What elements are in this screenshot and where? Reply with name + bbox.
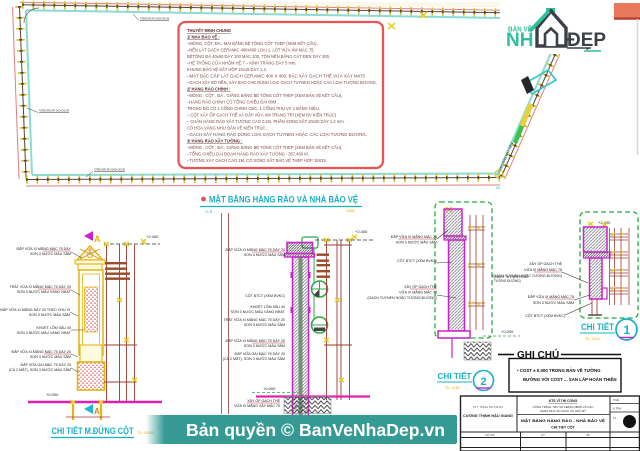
svg-text:+2.400: +2.400	[146, 234, 159, 239]
svg-text:– CỘT XÂY ỐP GẠCH THẺ VÀ ĐẮP V: – CỘT XÂY ỐP GẠCH THẺ VÀ ĐẮP VỮA XM TRAN…	[187, 113, 337, 118]
svg-text:ĐẮP VỮA XI MĂNG MÁC 75 DÀY 20: ĐẮP VỮA XI MĂNG MÁC 75 DÀY 20	[12, 349, 71, 354]
svg-text:(CẢ 2 MẶT), SƠN 3 NƯỚC MÀU SẮM: (CẢ 2 MẶT), SƠN 3 NƯỚC MÀU SẮM	[9, 367, 71, 372]
svg-text:ĐƯỜNG VỚI COST ... SAN LẤP HOÀ: ĐƯỜNG VỚI COST ... SAN LẤP HOÀN THIỆN	[523, 377, 617, 382]
svg-text:A: A	[94, 407, 100, 416]
svg-text:CƯỜNG THỊNH HẬU GIANG: CƯỜNG THỊNH HẬU GIANG	[463, 413, 513, 418]
svg-text:THUYẾT MINH CHUNG: THUYẾT MINH CHUNG	[187, 28, 231, 33]
svg-text:–HÀNG RÀO CHÍNH CÓ TỔNG CHIỀU: –HÀNG RÀO CHÍNH CÓ TỔNG CHIỀU DÀI 80M ,	[187, 100, 279, 105]
svg-text:TL: 1/10: TL: 1/10	[445, 385, 460, 390]
svg-text:NH: NH	[506, 30, 533, 51]
svg-text:SƠN 3 NƯỚC MÀU SẮM: SƠN 3 NƯỚC MÀU SẮM	[244, 322, 285, 327]
svg-text:1/400: 1/400	[346, 209, 355, 213]
svg-text:TƯỜNG ĐƯỜNG): TƯỜNG ĐƯỜNG)	[494, 278, 521, 283]
svg-text:–MẶT BẬC CẤP LÁT GẠCH CERAMIC: –MẶT BẬC CẤP LÁT GẠCH CERAMIC 400 X 400,…	[187, 74, 366, 79]
svg-text:–GẠCH XÂY BÓ NỀN, XÂY BAO CHE: –GẠCH XÂY BÓ NỀN, XÂY BAO CHE DÙNG LOẠI …	[187, 80, 377, 85]
svg-text:CỘT BTCT (XEM BVKC): CỘT BTCT (XEM BVKC)	[397, 258, 437, 263]
svg-text:05: 05	[586, 433, 590, 437]
svg-text:SƠN 3 NƯỚC MÀU SẮM: SƠN 3 NƯỚC MÀU SẮM	[30, 251, 71, 256]
svg-text:CTY TNHH XD-TM-DV: CTY TNHH XD-TM-DV	[473, 405, 504, 409]
svg-text:SƠN 3 NƯỚC MÀU SẮM: SƠN 3 NƯỚC MÀU SẮM	[244, 252, 285, 257]
svg-text:(GẠCH TUYNEN HOẶC TƯỜNG ĐƯỜNG): (GẠCH TUYNEN HOẶC TƯỜNG ĐƯỜNG)	[367, 295, 437, 300]
svg-text:SƠN 3 NƯỚC MÀU SẮM: SƠN 3 NƯỚC MÀU SẮM	[30, 354, 71, 359]
svg-text:SƠN 3 NƯỚC MÀU VÀNG NHẠT: SƠN 3 NƯỚC MÀU VÀNG NHẠT	[17, 330, 72, 335]
svg-text:ĐẮP VỮA XI MĂNG MÁC 75: ĐẮP VỮA XI MĂNG MÁC 75	[391, 234, 437, 239]
svg-text:TL Đ: TL Đ	[205, 210, 213, 214]
svg-text:TƯỜNG RÀO XÂY GẠCH CAO 2M: TƯỜNG RÀO XÂY GẠCH CAO 2M	[94, 167, 125, 172]
svg-text:–MÓNG , CỘT , ĐÀ , GIẰNG BẰNG: –MÓNG , CỘT , ĐÀ , GIẰNG BẰNG BÊ TÔNG CỐ…	[187, 145, 342, 150]
svg-text:XÂY ỐP GẠCH THẺ: XÂY ỐP GẠCH THẺ	[404, 284, 437, 289]
svg-text:–TỔNG CHIỀU DÀI ĐOẠN HÀNG RÀO: –TỔNG CHIỀU DÀI ĐOẠN HÀNG RÀO XÂY TƯỜNG …	[187, 152, 309, 157]
svg-text:ĐẮP VỮA XI MĂNG MÁC 75 DÀY 20: ĐẮP VỮA XI MĂNG MÁC 75 DÀY 20	[226, 338, 285, 343]
svg-text:SƠN 3 NƯỚC MÀU VÀNG NHẠT: SƠN 3 NƯỚC MÀU VÀNG NHẠT	[231, 309, 286, 314]
svg-text:CHI TIẾT M.ĐỨNG CỘT: CHI TIẾT M.ĐỨNG CỘT	[52, 425, 134, 436]
svg-text:2/ HÀNG RÀO CHÍNH :: 2/ HÀNG RÀO CHÍNH :	[187, 87, 230, 92]
svg-text:ĐẮP VỮA XI MĂNG MÁC 75 DÀY 20: ĐẮP VỮA XI MĂNG MÁC 75 DÀY 20	[226, 247, 285, 252]
svg-text:TƯỜNG RÀO XÂY GẠCH CAO 2M: TƯỜNG RÀO XÂY GẠCH CAO 2M	[140, 16, 169, 21]
svg-text:XÂY ỐP GẠCH THẺ: XÂY ỐP GẠCH THẺ	[529, 261, 562, 266]
svg-text:ĐẮP VỮA XI MĂNG DÀY 20 THEO CH: ĐẮP VỮA XI MĂNG DÀY 20 THEO CHU VI	[0, 307, 70, 312]
svg-text:–MÓNG, CỘT, ĐÀ.. MÁI BẰNG BÊ T: –MÓNG, CỘT, ĐÀ.. MÁI BẰNG BÊ TÔNG CỐT TH…	[187, 41, 318, 46]
svg-text:+0.000: +0.000	[263, 386, 276, 391]
svg-text:SƠN 3 NƯỚC MÀU SẮM: SƠN 3 NƯỚC MÀU SẮM	[244, 343, 285, 348]
svg-text:SƠN 3 NƯỚC MÀU SẮM: SƠN 3 NƯỚC MÀU SẮM	[396, 240, 437, 245]
svg-text:TRÁT VỮA XI MĂNG MÁC 75 DÀY 20: TRÁT VỮA XI MĂNG MÁC 75 DÀY 20	[10, 284, 71, 289]
svg-text:Bản quyền © BanVeNhaDep.vn: Bản quyền © BanVeNhaDep.vn	[186, 420, 445, 440]
svg-text:KHUNG BẢO VỆ SẮT HỘP 15x15 DÀY: KHUNG BẢO VỆ SẮT HỘP 15x15 DÀY 1,2,	[187, 67, 267, 72]
svg-text:BÊTÔNG ĐÁ 40x60 DÀY 100 MÁC 10: BÊTÔNG ĐÁ 40x60 DÀY 100 MÁC 100, TÔN NỀN…	[187, 54, 330, 59]
svg-text:– CHÂN HÀNG RÀO XÂY TƯỜNG CAO: – CHÂN HÀNG RÀO XÂY TƯỜNG CAO 0,2m, PHẦN…	[187, 119, 344, 124]
svg-text:MẶT BẰNG HÀNG RÀO - NHÀ BẢO VỆ: MẶT BẰNG HÀNG RÀO - NHÀ BẢO VỆ	[521, 418, 606, 423]
svg-text:+0.000: +0.000	[46, 392, 59, 397]
svg-text:ĐẮP VỮA XI MĂNG MÁC 75 DÀY: ĐẮP VỮA XI MĂNG MÁC 75 DÀY	[16, 246, 71, 251]
svg-text:TL: TL	[613, 416, 617, 420]
svg-text:TL: 1/10: TL: 1/10	[585, 336, 600, 341]
svg-text:TRÁT VỮA XI MĂNG MÁC 75 DÀY 20: TRÁT VỮA XI MĂNG MÁC 75 DÀY 20	[224, 317, 285, 322]
svg-text:ĐẮP VỮA XI MĂNG MÁC 75: ĐẮP VỮA XI MĂNG MÁC 75	[528, 294, 574, 299]
svg-text:1/ NHÀ BẢO VỆ :: 1/ NHÀ BẢO VỆ :	[187, 35, 220, 40]
svg-text:VỮA XI MĂNG MÁC 75: VỮA XI MĂNG MÁC 75	[524, 267, 562, 272]
svg-text:CHI TIẾT: CHI TIẾT	[438, 371, 473, 381]
svg-text:–MÓNG , CỘT , ĐÀ , GIẰNG BẰNG: –MÓNG , CỘT , ĐÀ , GIẰNG BẰNG BÊ TÔNG CỐ…	[187, 93, 342, 98]
svg-text:HẠNG MỤC XD KHÁC XÃ HOÀ MỸ: HẠNG MỤC XD KHÁC XÃ HOÀ MỸ	[540, 408, 586, 413]
svg-text:VỮA XI MĂNG MÁC 75: VỮA XI MĂNG MÁC 75	[399, 290, 437, 295]
svg-text:2: 2	[481, 376, 487, 388]
svg-text:TƯỜNG RÀO XÂY GẠCH CAO 2M: TƯỜNG RÀO XÂY GẠCH CAO 2M	[39, 108, 69, 113]
svg-text:SƠN 3 NƯỚC MÀU VÀNG NHẠT: SƠN 3 NƯỚC MÀU VÀNG NHẠT	[17, 289, 72, 294]
svg-text:SƠN 3 NƯỚC MÀU SẮM: SƠN 3 NƯỚC MÀU SẮM	[533, 300, 574, 305]
svg-text:ĐẮP VỮA GAI MÁC 75 DÀY 20: ĐẮP VỮA GAI MÁC 75 DÀY 20	[21, 362, 71, 367]
svg-text:1: 1	[624, 323, 631, 337]
svg-text:–TƯỜNG XÂY GẠCH CAO 2M, CÓ SON: –TƯỜNG XÂY GẠCH CAO 2M, CÓ SONG SẮT BẢO …	[187, 158, 327, 163]
svg-text:CHI TIẾT CỘT: CHI TIẾT CỘT	[551, 425, 575, 430]
svg-text:A: A	[94, 234, 101, 244]
svg-text:XÂY ỐP GẠCH THẺ: XÂY ỐP GẠCH THẺ	[247, 398, 280, 403]
svg-text:T.KẾ: T.KẾ	[613, 397, 619, 402]
svg-text:(CẢ 2 MẶT), SƠN 3 NƯỚC MÀU SẮM: (CẢ 2 MẶT), SƠN 3 NƯỚC MÀU SẮM	[223, 356, 285, 361]
svg-text:–GẠCH XÂY HÀNG RÀO DÙNG LOẠI G: –GẠCH XÂY HÀNG RÀO DÙNG LOẠI GẠCH TUYNEN…	[187, 132, 367, 137]
svg-text:KT: KT	[541, 433, 545, 437]
svg-text:CÓ HOA VĂNG NHƯ BẢN VẼ KIẾN TR: CÓ HOA VĂNG NHƯ BẢN VẼ KIẾN TRÚC,	[187, 126, 267, 131]
svg-text:MẶT BẰNG HÀNG RÀO VÀ NHÀ BẢO V: MẶT BẰNG HÀNG RÀO VÀ NHÀ BẢO VỆ	[209, 194, 358, 206]
svg-text:–HỆ THỐNG CỬA NHÔM HỆ 7 – KÍNH: –HỆ THỐNG CỬA NHÔM HỆ 7 – KÍNH TRẮNG DÀY…	[187, 61, 297, 66]
svg-text:3/ HÀNG RÀO XÂY TƯỜNG :: 3/ HÀNG RÀO XÂY TƯỜNG :	[187, 139, 243, 144]
svg-text:HỒ SƠ: HỒ SƠ	[485, 432, 495, 437]
svg-text:KTS VĨ THI CÔNG: KTS VĨ THI CÔNG	[549, 398, 578, 403]
svg-text:CỘT BTCT (XEM BVKC): CỘT BTCT (XEM BVKC)	[245, 293, 285, 298]
svg-text:–NỀN LÁT GẠCH CERAMIC 400x400: –NỀN LÁT GẠCH CERAMIC 400x400 LOẠI 1, LÓ…	[187, 48, 315, 53]
svg-text:• COST ± 0.000 TRONG BẢN VẼ TƯ: • COST ± 0.000 TRONG BẢN VẼ TƯỜNG	[517, 368, 601, 373]
svg-text:CHI TIẾT: CHI TIẾT	[581, 322, 614, 332]
svg-text:KHOÉT LÕM SÂU 40: KHOÉT LÕM SÂU 40	[251, 304, 286, 309]
svg-text:SƠN 3 NƯỚC MÀU SẮM: SƠN 3 NƯỚC MÀU SẮM	[29, 312, 70, 317]
svg-text:ĐẮP VỮA GAI MÁC 75 DÀY 20: ĐẮP VỮA GAI MÁC 75 DÀY 20	[235, 351, 285, 356]
svg-text:VỮA XI MĂNG XÂY MÁC 75: VỮA XI MĂNG XÂY MÁC 75	[234, 403, 280, 408]
svg-text:+0.000: +0.000	[501, 329, 514, 334]
svg-text:TRONG ĐÓ CÓ 1 CỔNG CHÍNH CĐC,: TRONG ĐÓ CÓ 1 CỔNG CHÍNH CĐC, 1 CỔNG PHỤ…	[187, 106, 320, 111]
svg-text:CỘT BTCT (XEM BVKC): CỘT BTCT (XEM BVKC)	[525, 313, 565, 318]
svg-text:K.TRA: K.TRA	[613, 407, 621, 411]
svg-text:KHOÉT LÕM SÂU 40: KHOÉT LÕM SÂU 40	[37, 325, 72, 330]
svg-text:+2.400: +2.400	[355, 229, 368, 234]
svg-text:(GẠCH TUYNEN HOẶC TƯỜNG ĐƯỜNG): (GẠCH TUYNEN HOẶC TƯỜNG ĐƯỜNG)	[492, 273, 562, 278]
svg-text:M1: M1	[496, 186, 501, 190]
